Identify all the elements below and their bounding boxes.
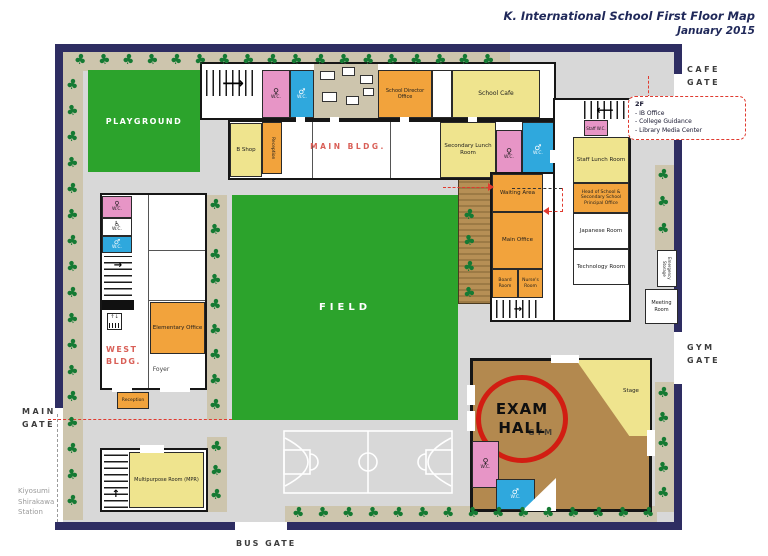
tree-icon: ♣ [65,181,80,197]
tree-icon: ♣ [541,505,556,521]
entrance-path [443,187,489,188]
tree-icon: ♣ [656,385,671,401]
wc-girls-corridor: ♀ W.C. [496,130,522,178]
tree-icon: ♣ [65,155,80,171]
tree-icon: ♣ [566,505,581,521]
playground-area: PLAYGROUND [88,70,200,172]
tree-icon: ♣ [121,52,136,68]
tree-icon: ♣ [65,129,80,145]
tree-icon: ♣ [341,505,356,521]
tree-icon: ♣ [208,397,223,413]
tree-icon: ♣ [217,52,232,68]
tree-icon: ♣ [208,247,223,263]
emergency-storage-label: Emergency Storage [662,252,672,285]
wc-girls-main: ♀ W.C. [262,70,290,118]
tree-icon: ♣ [391,505,406,521]
west-bldg-label: WEST BLDG. [106,344,150,367]
tree-icon: ♣ [209,439,224,455]
tree-icon: ♣ [516,505,531,521]
wc-girls-gym: ♀ W.C. [472,441,499,488]
cafe-gate-line1: CAFE [687,64,720,77]
tree-icon: ♣ [656,460,671,476]
cafe-gate-label: CAFE GATE [687,64,720,90]
tree-icon: ♣ [65,259,80,275]
tree-icon: ♣ [265,52,280,68]
door [296,117,305,122]
main-gate-line2: GATE [22,419,56,432]
tree-icon: ♣ [416,505,431,521]
office-stairs-arrow-icon: → [496,300,540,318]
tree-icon: ♣ [65,337,80,353]
tree-icon: ♣ [441,505,456,521]
west-bldg-label-line2: BLDG. [106,356,150,368]
tree-icon: ♣ [65,415,80,431]
door [467,385,475,405]
tree-icon: ♣ [291,505,306,521]
school-cafe: School Cafe [452,70,540,118]
gym-gate-line2: GATE [687,355,720,368]
tree-icon: ♣ [241,52,256,68]
station-path [57,414,58,522]
tree-icon: ♣ [65,207,80,223]
door [647,430,655,456]
field-area: FIELD [232,195,458,420]
school-director-office: School Director Office [378,70,432,118]
tree-icon: ♣ [169,52,184,68]
wall-left [55,44,63,408]
tree-icon: ♣ [457,52,472,68]
tree-icon: ♣ [73,52,88,68]
cafe-gate-connector [648,76,649,98]
main-office: Main Office [492,212,543,269]
tree-icon: ♣ [491,505,506,521]
table [360,75,373,84]
tree-icon: ♣ [466,505,481,521]
tree-icon: ♣ [65,103,80,119]
wc-accessible-west: ♿ W.C. [102,218,132,236]
tree-icon: ♣ [209,463,224,479]
table [320,71,335,80]
tree-icon: ♣ [409,52,424,68]
wc-boys-west: ♂ W.C. [102,236,132,253]
wc-boys-main: ♂ W.C. [290,70,314,118]
door [140,445,164,453]
wc-label: W.C. [297,96,307,101]
tree-icon: ♣ [361,52,376,68]
map-title-line1: K. International School First Floor Map [504,8,755,24]
tree-icon: ♣ [337,52,352,68]
playground-label: PLAYGROUND [106,117,183,126]
table [346,96,359,105]
tree-icon: ♣ [65,311,80,327]
wc-label: W.C. [481,466,491,471]
second-floor-note-heading: 2F [635,100,739,110]
tree-icon: ♣ [656,221,671,237]
reception-entrance-label: Reception [269,137,275,159]
tree-icon: ♣ [208,272,223,288]
wc-label: W.C. [533,152,543,157]
entrance-arrow-icon: ⟶ [206,70,260,96]
east-stairs-arrow-icon: ⟵ [584,101,626,119]
entrance-path-arrowhead [488,183,494,191]
tree-icon: ♣ [65,493,80,509]
tree-icon: ♣ [641,505,656,521]
tree-icon: ♣ [65,77,80,93]
exam-hall-line1: EXAM [496,400,548,419]
nurses-room: Nurse's Room [518,269,543,298]
wall-bottom-right [287,522,682,530]
tree-icon: ♣ [208,297,223,313]
table [342,67,355,76]
elevator-icon: ↑↓ [107,313,122,330]
wall-bottom-left [55,522,235,530]
main-gate-label: MAIN GATE [22,406,56,432]
floor-map-page: K. International School First Floor Map … [0,0,768,556]
meeting-room: Meeting Room [645,289,678,324]
wall-right-lower [674,384,682,530]
bus-gate-label: BUS GATE [236,538,296,551]
door [112,385,132,392]
tree-icon: ♣ [65,441,80,457]
staff-wc: Staff W.C. [584,120,608,136]
tree-icon: ♣ [591,505,606,521]
tree-icon: ♣ [289,52,304,68]
door [160,385,190,392]
tree-icon: ♣ [366,505,381,521]
second-floor-note-item: - IB Office [635,110,739,119]
station-line3: Station [18,507,54,518]
tree-icon: ♣ [462,259,477,275]
tree-icon: ♣ [656,410,671,426]
tree-icon: ♣ [656,167,671,183]
cafe-gate-line2: GATE [687,77,720,90]
office-path-end [549,211,563,212]
tree-icon: ♣ [616,505,631,521]
tree-icon: ♣ [65,233,80,249]
office-path-horizontal [512,188,562,189]
door [330,117,339,122]
secondary-lunch-room: Secondary Lunch Room [440,122,496,178]
japanese-room: Japanese Room [573,213,629,249]
wc-label: W.C. [511,496,521,501]
tree-icon: ♣ [209,487,224,503]
waiting-area: Waiting Area [492,174,543,212]
reception: Reception [117,392,149,409]
technology-room: Technology Room [573,249,629,285]
gym-gate-label: GYM GATE [687,342,720,368]
tree-icon: ♣ [208,197,223,213]
second-floor-note-item: - College Guidance [635,118,739,127]
door [551,355,579,363]
tree-icon: ♣ [208,372,223,388]
emergency-storage: Emergency Storage [657,250,677,287]
tree-icon: ♣ [462,207,477,223]
tree-icon: ♣ [65,285,80,301]
head-of-school-office: Head of School & Secondary School Princi… [573,183,629,213]
foyer-label: Foyer [146,366,176,373]
station-label: Kiyosumi Shirakawa Station [18,486,54,518]
west-stairs-arrow-icon: → [104,256,132,274]
reception-entrance: Reception [262,122,282,174]
elementary-office: Elementary Office [150,302,205,354]
wall-block [102,300,134,310]
wc-label: W.C. [112,246,122,251]
basketball-court [283,430,453,494]
staff-lunch-room: Staff Lunch Room [573,137,629,183]
tree-icon: ♣ [208,322,223,338]
tree-icon: ♣ [65,363,80,379]
wc-label: W.C. [112,208,122,213]
map-title: K. International School First Floor Map … [504,8,755,39]
wc-label: W.C. [504,156,514,161]
tree-icon: ♣ [208,222,223,238]
elevator-arrows: ↑↓ [110,315,118,320]
tree-icon: ♣ [65,467,80,483]
second-floor-note: 2F - IB Office - College Guidance - Libr… [628,96,746,140]
gym-gate-line1: GYM [687,342,720,355]
wc-girls-west: ♀ W.C. [102,196,132,218]
main-gate-line1: MAIN [22,406,56,419]
wall-top [55,44,682,52]
tree-icon: ♣ [462,233,477,249]
main-bldg-label: MAIN BLDG. [288,142,408,151]
tree-icon: ♣ [316,505,331,521]
door [550,150,556,163]
mpr-stairs-arrow-icon: ↑ [104,484,128,504]
door [468,117,477,122]
office-path-vertical [562,188,563,212]
door [400,117,409,122]
tree-icon: ♣ [433,52,448,68]
tree-icon: ♣ [313,52,328,68]
second-floor-note-item: - Library Media Center [635,127,739,136]
tree-icon: ♣ [208,347,223,363]
tree-icon: ♣ [193,52,208,68]
multipurpose-room: Multipurpose Room (MPR) [129,452,204,508]
tree-icon: ♣ [65,389,80,405]
station-line1: Kiyosumi [18,486,54,497]
tree-icon: ♣ [145,52,160,68]
tree-icon: ♣ [481,52,496,68]
b-shop: B Shop [230,123,262,177]
door [467,411,475,431]
tree-icon: ♣ [656,194,671,210]
wall-divider [148,250,205,251]
table [363,88,374,96]
west-bldg-label-line1: WEST [106,344,150,356]
wall-divider [148,300,205,301]
stage-label: Stage [614,388,648,394]
board-room: Board Room [492,269,518,298]
elevator-grill [109,323,120,328]
tree-icon: ♣ [656,485,671,501]
station-line2: Shirakawa [18,497,54,508]
exam-hall-line2: HALL [498,419,545,438]
tree-icon: ♣ [656,435,671,451]
map-title-line2: January 2015 [504,24,755,39]
tree-icon: ♣ [462,285,477,301]
field-label: FIELD [319,302,371,313]
wc-label: W.C. [271,96,281,101]
office-path-arrowhead [543,207,549,215]
wall-right-upper [674,44,682,74]
tree-icon: ♣ [385,52,400,68]
table [322,92,337,102]
wc-label: W.C. [112,228,122,233]
tree-icon: ♣ [97,52,112,68]
small-room [432,70,452,118]
